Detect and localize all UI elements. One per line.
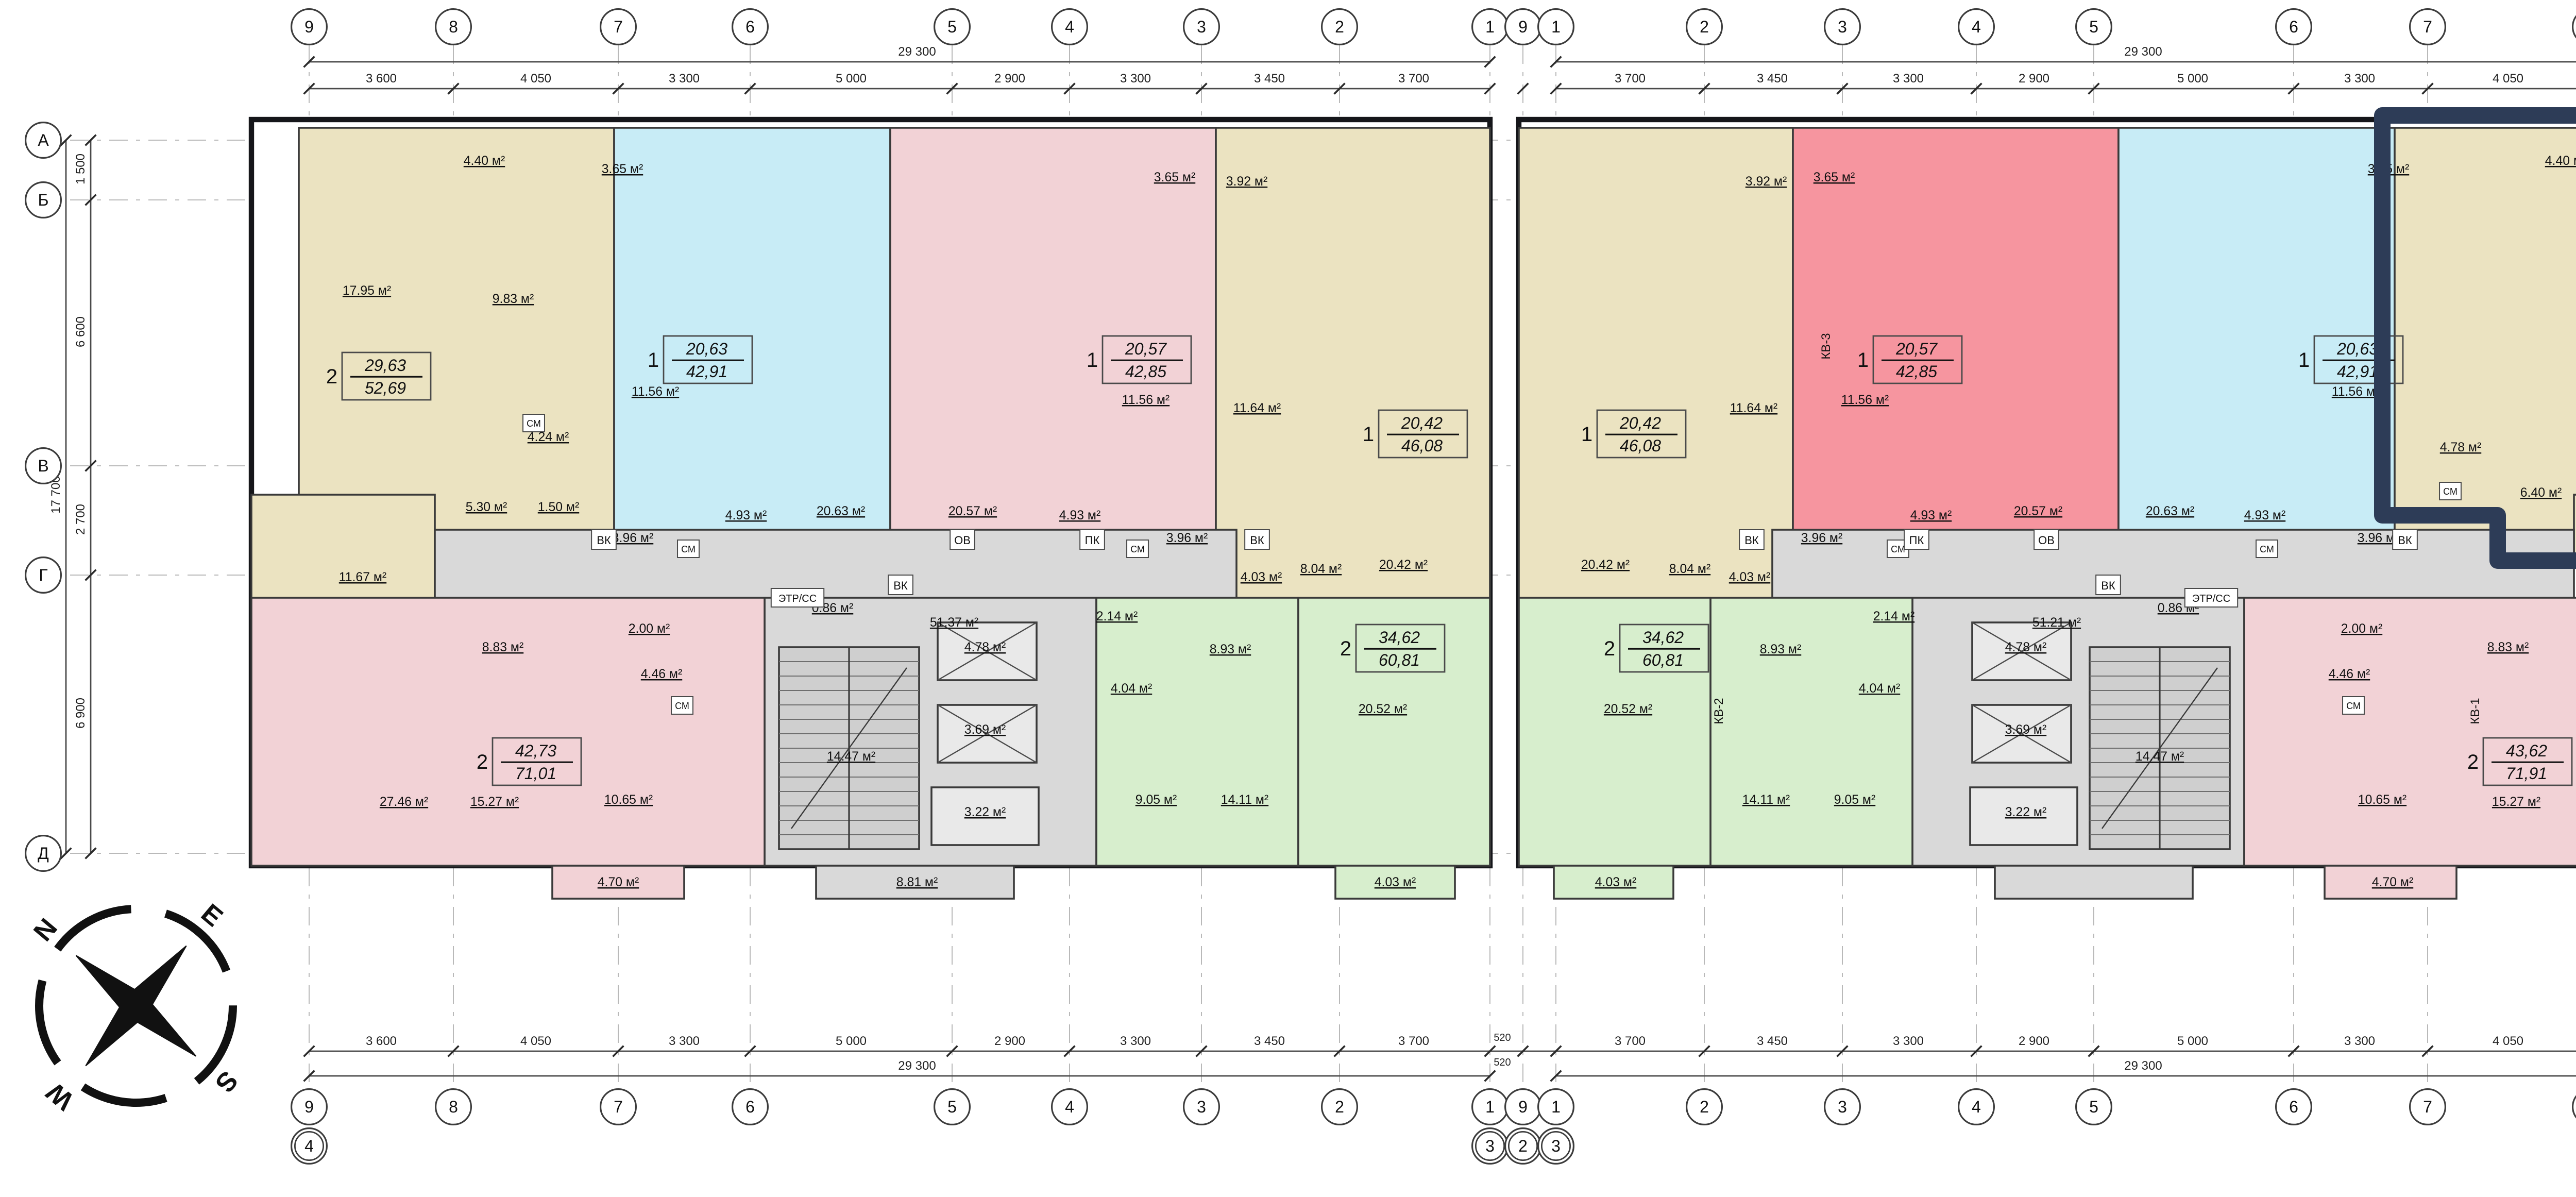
room-area-label: 8.81 м² [896, 875, 938, 889]
room-area-label: 3.22 м² [964, 805, 1006, 819]
utility-label: ВК [1245, 530, 1269, 549]
svg-text:2 700: 2 700 [74, 504, 88, 535]
svg-text:1: 1 [1551, 18, 1561, 36]
svg-text:3 300: 3 300 [1893, 1034, 1924, 1048]
svg-text:3 300: 3 300 [669, 1034, 700, 1048]
svg-text:20,63: 20,63 [686, 340, 727, 358]
compass-letter: W [41, 1076, 80, 1116]
svg-text:42,73: 42,73 [515, 741, 556, 760]
room-area-label: 4.04 м² [1111, 682, 1152, 696]
room-area-label: 51.21 м² [2032, 616, 2081, 630]
floor-plan-page: 3 6003 6004 0504 0503 3003 3005 0005 000… [0, 0, 2576, 1194]
svg-text:СМ: СМ [527, 418, 541, 429]
room-area-label: 3.92 м² [1745, 175, 1787, 189]
svg-text:ЭТР/СС: ЭТР/СС [778, 593, 817, 604]
room-area-label: 9.05 м² [1834, 793, 1875, 807]
room-area-label: 3.65 м² [1154, 171, 1195, 184]
utility-label: КВ-3 [1819, 333, 1833, 359]
svg-text:3 700: 3 700 [1398, 72, 1429, 86]
svg-text:52,69: 52,69 [365, 379, 406, 397]
room-area-label: 4.40 м² [2545, 154, 2576, 168]
room-area-label: 20.57 м² [948, 504, 997, 518]
svg-text:1: 1 [1485, 1098, 1495, 1116]
room-area-label: 51.37 м² [930, 616, 978, 630]
svg-text:2: 2 [1518, 1137, 1528, 1155]
room-area-label: 1.50 м² [538, 500, 579, 514]
svg-text:ЭТР/СС: ЭТР/СС [2192, 593, 2230, 604]
svg-text:5 000: 5 000 [836, 1034, 867, 1048]
room [1793, 128, 2119, 532]
room-area-label: 4.24 м² [528, 430, 569, 444]
svg-text:3: 3 [1197, 18, 1206, 36]
room-area-label: 4.46 м² [2329, 667, 2370, 681]
room-area-label: 11.64 м² [1233, 401, 1281, 415]
compass-rose: NESW [28, 898, 243, 1116]
room [2244, 598, 2576, 866]
svg-text:29 300: 29 300 [898, 1059, 936, 1073]
room-area-label: 10.65 м² [2358, 793, 2406, 807]
svg-text:20,57: 20,57 [1895, 340, 1938, 358]
room-area-label: 4.03 м² [1729, 570, 1770, 584]
svg-text:7: 7 [2423, 18, 2432, 36]
room-area-label: 4.78 м² [2440, 441, 2481, 454]
room-area-label: 11.56 м² [2332, 385, 2379, 399]
svg-text:46,08: 46,08 [1620, 436, 1661, 455]
axis-circle [2573, 9, 2576, 45]
room-area-label: 20.63 м² [817, 504, 865, 518]
svg-text:В: В [38, 457, 48, 475]
svg-text:42,85: 42,85 [1125, 362, 1166, 381]
compass-letter: S [209, 1065, 244, 1098]
utility-label: СМ [523, 414, 545, 432]
room-area-label: 4.03 м² [1375, 875, 1416, 889]
svg-text:3 700: 3 700 [1398, 1034, 1429, 1048]
utility-label: ОВ [950, 530, 975, 549]
room [1096, 598, 1298, 866]
room-area-label: 20.42 м² [1379, 558, 1428, 572]
svg-text:Б: Б [38, 191, 49, 209]
utility-label: ПК [1904, 530, 1929, 549]
svg-text:3 300: 3 300 [669, 72, 700, 86]
room-area-label: 10.65 м² [604, 793, 653, 807]
room-area-label: 8.83 м² [2487, 640, 2529, 654]
svg-text:1: 1 [1581, 423, 1592, 446]
axis-circle [2573, 1089, 2576, 1125]
svg-text:9: 9 [304, 1098, 314, 1116]
room-area-label: 17.95 м² [343, 284, 391, 298]
svg-text:СМ: СМ [675, 701, 689, 711]
room [1710, 598, 1912, 866]
svg-text:1: 1 [1087, 349, 1098, 372]
room-area-label: 4.93 м² [2244, 509, 2285, 522]
svg-text:4 050: 4 050 [520, 72, 551, 86]
svg-text:А: А [38, 131, 49, 149]
room [2119, 128, 2395, 532]
room-area-label: 3.65 м² [602, 162, 643, 176]
utility-label: ВК [1739, 530, 1764, 549]
svg-text:2: 2 [1700, 1098, 1709, 1116]
room-area-label: 9.83 м² [493, 292, 534, 306]
svg-text:3 300: 3 300 [1120, 72, 1151, 86]
svg-text:1: 1 [1485, 18, 1495, 36]
svg-text:5: 5 [2089, 18, 2098, 36]
room-area-label: 14.11 м² [1221, 793, 1268, 807]
svg-text:2 900: 2 900 [994, 72, 1025, 86]
svg-text:3 450: 3 450 [1254, 72, 1285, 86]
svg-text:4: 4 [304, 1137, 314, 1155]
room-area-label: 20.42 м² [1581, 558, 1630, 572]
svg-text:4 050: 4 050 [2493, 72, 2523, 86]
svg-text:2 900: 2 900 [994, 1034, 1025, 1048]
svg-text:20,57: 20,57 [1125, 340, 1167, 358]
svg-text:29 300: 29 300 [2124, 1059, 2162, 1073]
svg-text:3: 3 [1197, 1098, 1206, 1116]
room-area-label: 14.11 м² [1742, 793, 1790, 807]
svg-text:3 600: 3 600 [366, 72, 397, 86]
svg-text:ВК: ВК [597, 534, 611, 547]
room-area-label: 27.46 м² [380, 795, 428, 809]
svg-text:42,91: 42,91 [686, 362, 727, 381]
svg-text:2 900: 2 900 [2019, 72, 2049, 86]
svg-text:ВК: ВК [2101, 579, 2115, 592]
svg-text:7: 7 [2423, 1098, 2432, 1116]
room-area-label: 20.52 м² [1359, 702, 1407, 716]
room-area-label: 3.96 м² [1801, 531, 1842, 545]
svg-text:4 050: 4 050 [2493, 1034, 2523, 1048]
svg-text:7: 7 [614, 18, 623, 36]
utility-label: СМ [2439, 482, 2461, 500]
svg-text:ОВ: ОВ [954, 534, 971, 547]
svg-text:6: 6 [745, 1098, 755, 1116]
room-area-label: 11.56 м² [1122, 393, 1170, 407]
svg-text:60,81: 60,81 [1379, 651, 1420, 669]
room-area-label: 2.00 м² [2341, 622, 2382, 636]
room-area-label: 9.05 м² [1136, 793, 1177, 807]
room-area-label: 4.93 м² [725, 509, 767, 522]
svg-text:3 700: 3 700 [1615, 1034, 1646, 1048]
svg-text:3 300: 3 300 [1893, 72, 1924, 86]
svg-text:2: 2 [1604, 637, 1615, 660]
svg-text:КВ-2: КВ-2 [1712, 698, 1726, 724]
room [1995, 866, 2193, 899]
svg-text:ПК: ПК [1909, 534, 1924, 547]
svg-text:5: 5 [947, 1098, 957, 1116]
svg-text:2: 2 [1335, 1098, 1344, 1116]
svg-text:20,42: 20,42 [1619, 414, 1661, 432]
svg-text:9: 9 [1518, 18, 1528, 36]
svg-text:КВ-1: КВ-1 [2468, 698, 2482, 724]
utility-label: КВ-2 [1712, 698, 1726, 724]
svg-text:3: 3 [1838, 18, 1847, 36]
utility-label: ПК [1080, 530, 1105, 549]
svg-text:ВК: ВК [1250, 534, 1264, 547]
svg-text:2: 2 [1340, 637, 1351, 660]
room-area-label: 4.93 м² [1059, 509, 1100, 522]
room-area-label: 20.57 м² [2014, 504, 2062, 518]
utility-label: ВК [2393, 530, 2417, 549]
svg-text:Д: Д [38, 844, 49, 863]
room-area-label: 2.00 м² [629, 622, 670, 636]
svg-text:ПК: ПК [1085, 534, 1100, 547]
svg-text:5 000: 5 000 [836, 72, 867, 86]
room-area-label: 4.78 м² [2005, 640, 2046, 654]
room-area-label: 4.40 м² [464, 154, 505, 168]
room-area-label: 3.92 м² [1226, 175, 1267, 189]
room-area-label: 5.30 м² [466, 500, 507, 514]
svg-text:4: 4 [1972, 1098, 1981, 1116]
compass-letter: E [195, 898, 228, 933]
room [251, 598, 765, 866]
room-area-label: 8.83 м² [482, 640, 523, 654]
room-area-label: 11.56 м² [632, 385, 679, 399]
svg-text:34,62: 34,62 [1379, 628, 1420, 647]
room [890, 128, 1216, 532]
compass-star-icon [76, 946, 196, 1066]
svg-text:КВ-3: КВ-3 [1819, 333, 1833, 359]
svg-text:42,91: 42,91 [2337, 362, 2378, 381]
svg-text:ВК: ВК [1744, 534, 1759, 547]
svg-text:1: 1 [1857, 349, 1869, 372]
room [435, 530, 1236, 598]
room-area-label: 3.65 м² [1814, 171, 1855, 184]
svg-text:2: 2 [326, 365, 337, 388]
room-area-label: 8.93 м² [1210, 643, 1251, 656]
room-area-label: 3.69 м² [964, 723, 1006, 737]
room [299, 128, 614, 532]
svg-text:6 900: 6 900 [74, 698, 88, 729]
utility-label: ВК [591, 530, 616, 549]
svg-text:1 500: 1 500 [74, 154, 88, 184]
svg-text:СМ: СМ [1130, 544, 1145, 554]
room-area-label: 14.47 м² [827, 750, 875, 764]
room-area-label: 3.96 м² [1166, 531, 1208, 545]
floor-plan-drawing: 3 6003 6004 0504 0503 3003 3005 0005 000… [0, 0, 2576, 1194]
svg-text:3 450: 3 450 [1757, 1034, 1788, 1048]
room-area-label: 20.52 м² [1604, 702, 1652, 716]
utility-label: СМ [1127, 540, 1148, 558]
svg-text:3 300: 3 300 [2344, 1034, 2375, 1048]
utility-label: СМ [2343, 697, 2364, 714]
svg-text:3 600: 3 600 [366, 1034, 397, 1048]
room [2395, 128, 2576, 532]
utility-label: ВК [2096, 575, 2121, 595]
svg-text:46,08: 46,08 [1401, 436, 1443, 455]
svg-text:ВК: ВК [2398, 534, 2412, 547]
svg-text:71,01: 71,01 [515, 764, 556, 783]
svg-text:29,63: 29,63 [364, 356, 406, 375]
svg-text:20,63: 20,63 [2336, 340, 2378, 358]
svg-text:2: 2 [1335, 18, 1344, 36]
svg-text:3 300: 3 300 [1120, 1034, 1151, 1048]
svg-text:6: 6 [745, 18, 755, 36]
svg-text:43,62: 43,62 [2506, 741, 2547, 760]
svg-text:3: 3 [1485, 1137, 1495, 1155]
svg-text:2 900: 2 900 [2019, 1034, 2049, 1048]
svg-text:1: 1 [648, 349, 659, 372]
svg-text:Г: Г [39, 566, 47, 584]
room-area-label: 15.27 м² [470, 795, 519, 809]
svg-text:4: 4 [1065, 1098, 1074, 1116]
svg-text:6: 6 [2289, 18, 2298, 36]
svg-text:3: 3 [1838, 1098, 1847, 1116]
svg-text:1: 1 [1551, 1098, 1561, 1116]
room-area-label: 4.46 м² [641, 667, 682, 681]
svg-text:2: 2 [2467, 751, 2479, 773]
room-area-label: 8.04 м² [1669, 562, 1710, 576]
svg-text:3 450: 3 450 [1757, 72, 1788, 86]
room-area-label: 4.70 м² [598, 875, 639, 889]
utility-label: СМ [671, 697, 693, 714]
room-area-label: 3.22 м² [2005, 805, 2046, 819]
svg-text:ВК: ВК [893, 579, 908, 592]
svg-text:34,62: 34,62 [1642, 628, 1684, 647]
svg-text:29 300: 29 300 [898, 45, 936, 59]
svg-text:42,85: 42,85 [1896, 362, 1937, 381]
svg-text:5: 5 [947, 18, 957, 36]
svg-text:71,91: 71,91 [2506, 764, 2547, 783]
svg-text:3 300: 3 300 [2344, 72, 2375, 86]
room-area-label: 11.64 м² [1730, 401, 1777, 415]
svg-text:520: 520 [1494, 1057, 1511, 1068]
svg-text:4: 4 [1065, 18, 1074, 36]
svg-text:8: 8 [449, 1098, 458, 1116]
room-area-label: 2.14 м² [1096, 610, 1138, 623]
room-area-label: 8.93 м² [1760, 643, 1801, 656]
svg-text:9: 9 [1518, 1098, 1528, 1116]
svg-text:6 600: 6 600 [74, 316, 88, 347]
room-area-label: 8.04 м² [1300, 562, 1342, 576]
room-area-label: 6.40 м² [2520, 486, 2562, 500]
room-area-label: 4.70 м² [2372, 875, 2413, 889]
svg-text:4 050: 4 050 [520, 1034, 551, 1048]
svg-text:520: 520 [1494, 1032, 1511, 1043]
utility-label: ВК [888, 575, 913, 595]
utility-label: ОВ [2034, 530, 2059, 549]
svg-text:2: 2 [1700, 18, 1709, 36]
room-area-label: 3.69 м² [2005, 723, 2046, 737]
svg-text:20,42: 20,42 [1401, 414, 1443, 432]
room-area-label: 14.47 м² [2136, 750, 2184, 764]
svg-text:60,81: 60,81 [1642, 651, 1684, 669]
room [614, 128, 890, 532]
room-area-label: 4.03 м² [1595, 875, 1636, 889]
svg-text:3: 3 [1551, 1137, 1561, 1155]
room-area-label: 15.27 м² [2492, 795, 2540, 809]
room-area-label: 11.56 м² [1841, 393, 1889, 407]
utility-label: ЭТР/СС [771, 588, 824, 607]
svg-text:СМ: СМ [1891, 544, 1905, 554]
room-area-label: 20.63 м² [2146, 504, 2194, 518]
utility-label: КВ-1 [2468, 698, 2482, 724]
svg-text:1: 1 [1363, 423, 1374, 446]
svg-text:1: 1 [2298, 349, 2310, 372]
svg-text:СМ: СМ [681, 544, 696, 554]
svg-text:3 450: 3 450 [1254, 1034, 1285, 1048]
utility-label: СМ [677, 540, 699, 558]
svg-text:ОВ: ОВ [2038, 534, 2055, 547]
utility-label: СМ [2256, 540, 2278, 558]
svg-text:3 700: 3 700 [1615, 72, 1646, 86]
svg-text:5 000: 5 000 [2177, 1034, 2208, 1048]
room-area-label: 2.14 м² [1873, 610, 1914, 623]
svg-text:29 300: 29 300 [2124, 45, 2162, 59]
svg-text:9: 9 [304, 18, 314, 36]
svg-text:СМ: СМ [2443, 486, 2458, 497]
svg-text:5 000: 5 000 [2177, 72, 2208, 86]
room-area-label: 4.78 м² [964, 640, 1006, 654]
svg-text:СМ: СМ [2346, 701, 2361, 711]
svg-text:7: 7 [614, 1098, 623, 1116]
svg-text:5: 5 [2089, 1098, 2098, 1116]
svg-text:8: 8 [449, 18, 458, 36]
svg-text:2: 2 [477, 751, 488, 773]
svg-text:6: 6 [2289, 1098, 2298, 1116]
svg-text:4: 4 [1972, 18, 1981, 36]
room-area-label: 4.04 м² [1859, 682, 1900, 696]
utility-label: ЭТР/СС [2185, 588, 2238, 607]
room-area-label: 4.93 м² [1910, 509, 1952, 522]
room-area-label: 11.67 м² [339, 570, 386, 584]
room-area-label: 4.03 м² [1241, 570, 1282, 584]
svg-text:СМ: СМ [2260, 544, 2274, 554]
room-area-label: 3.96 м² [612, 531, 653, 545]
